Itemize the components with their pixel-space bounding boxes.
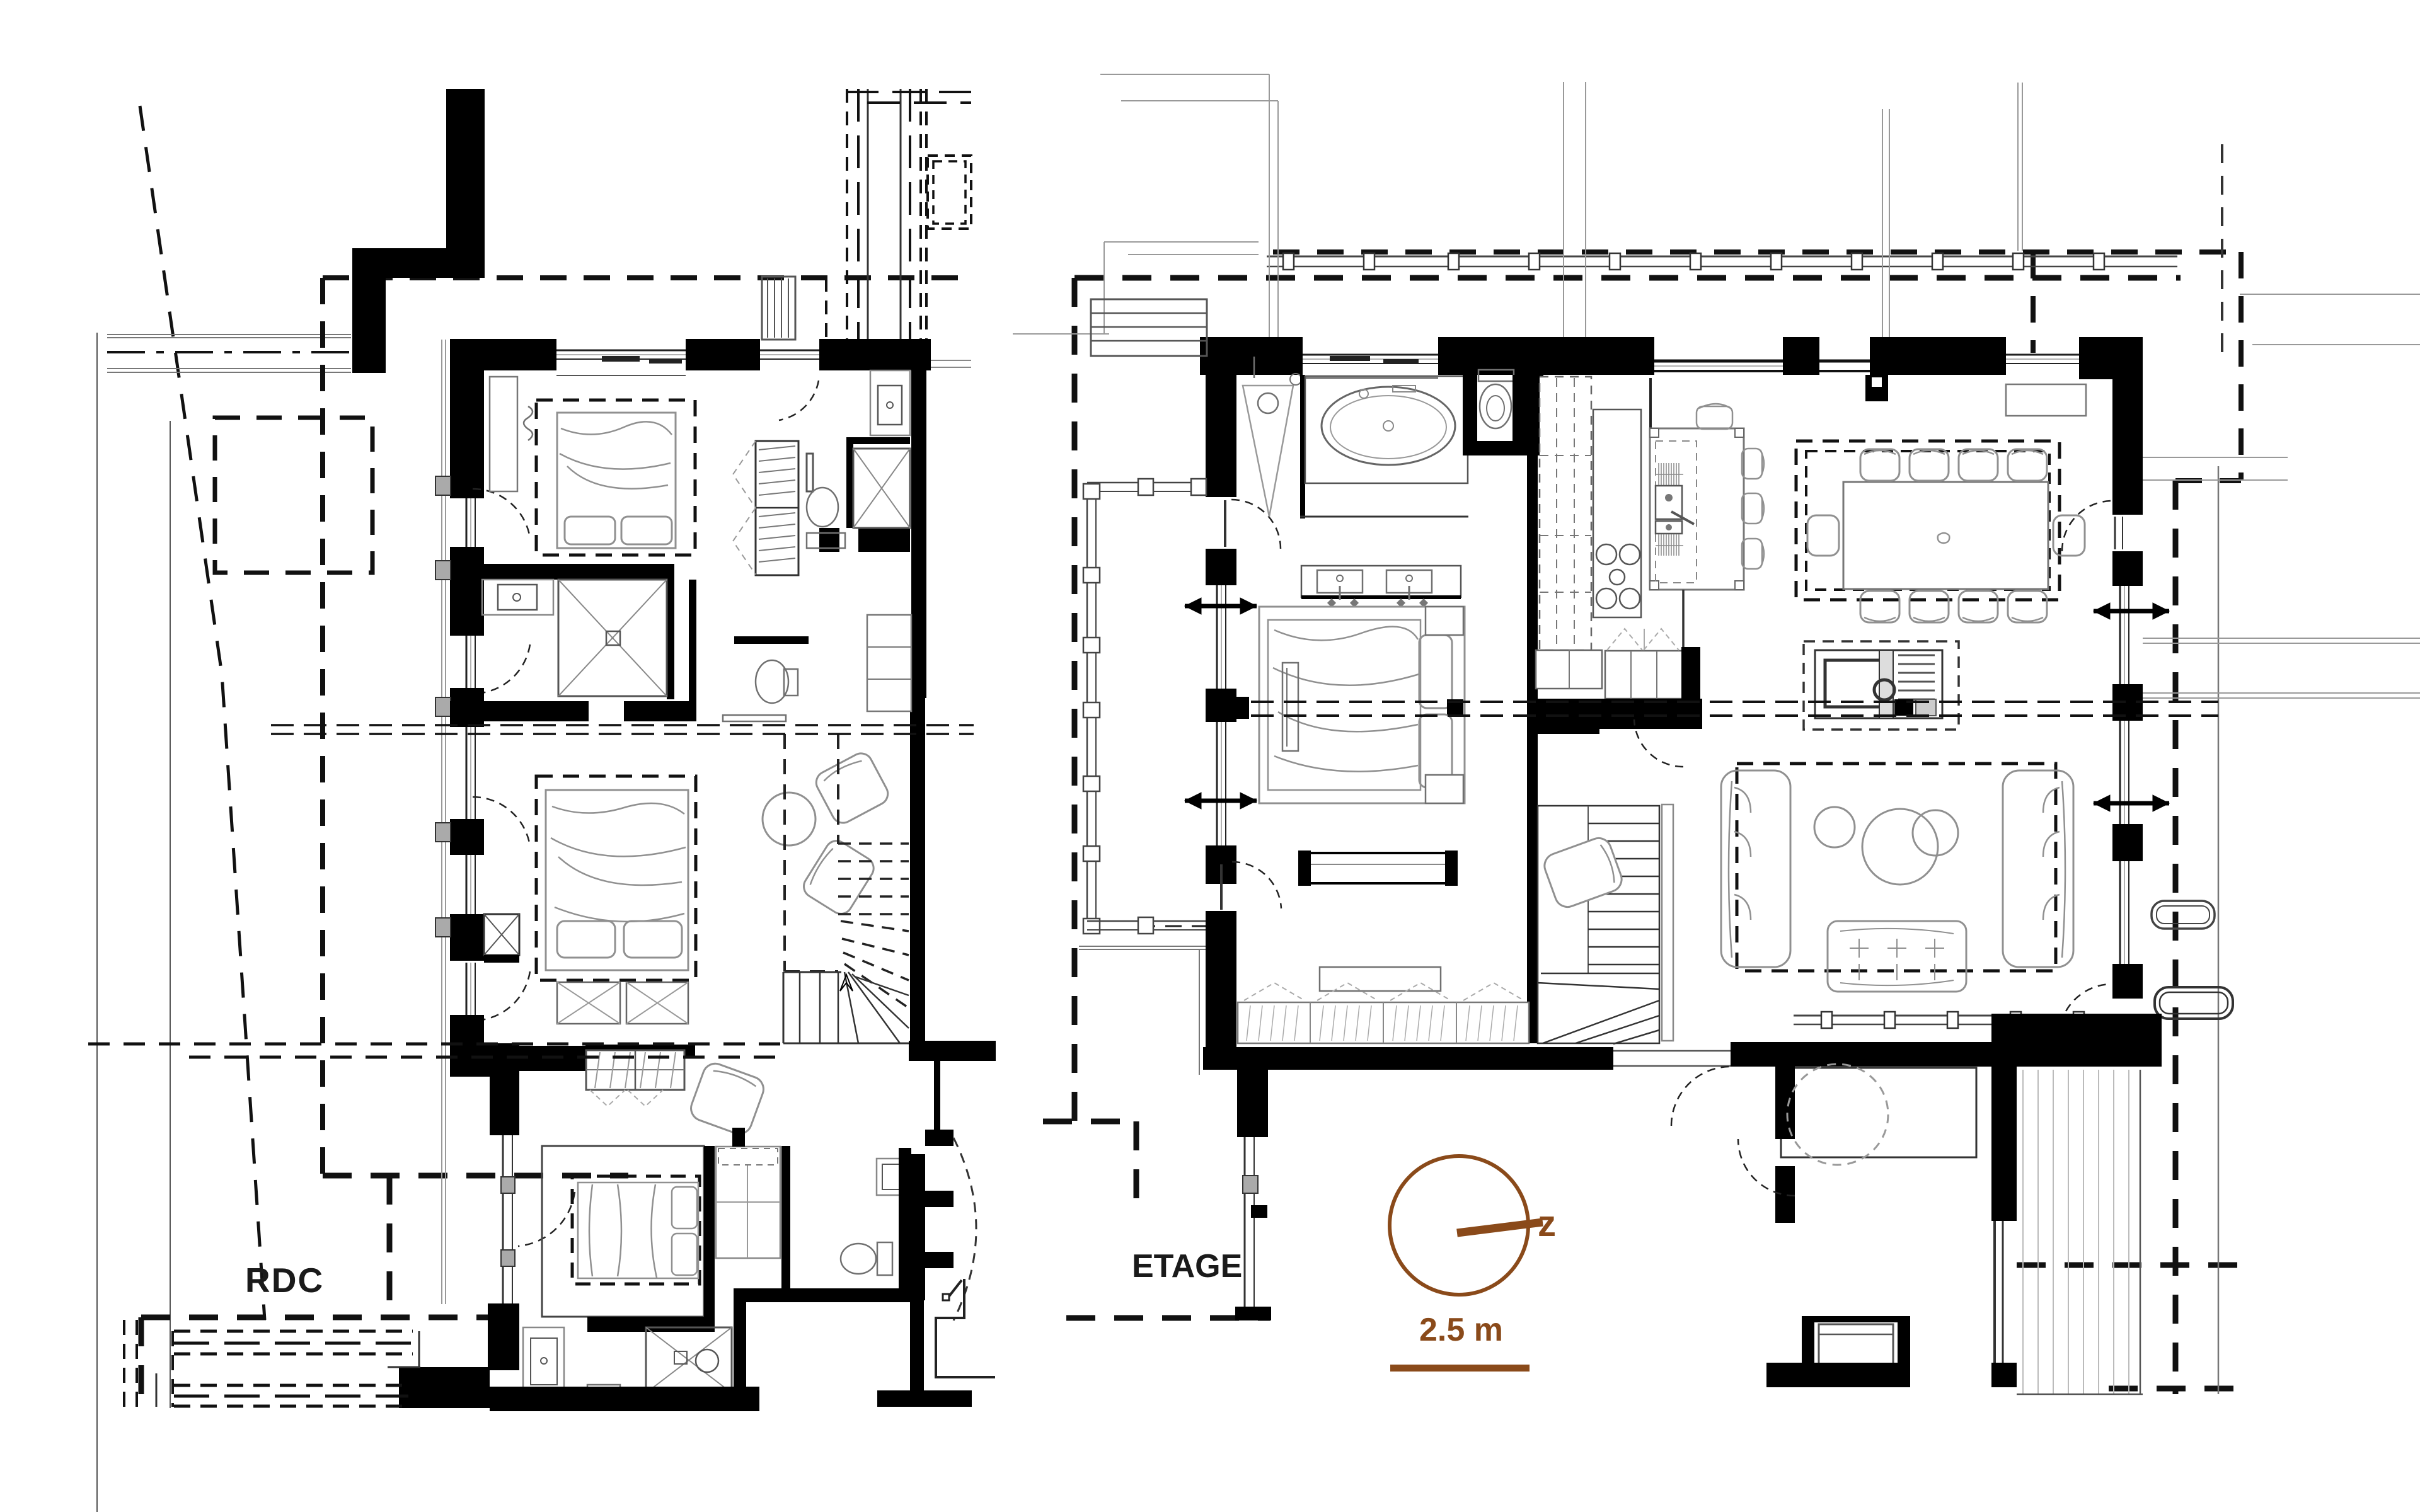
svg-text:RDC: RDC (245, 1261, 324, 1300)
svg-text:z: z (1538, 1203, 1556, 1244)
svg-text:2.5 m: 2.5 m (1419, 1312, 1503, 1348)
svg-text:ETAGE: ETAGE (1132, 1248, 1242, 1285)
